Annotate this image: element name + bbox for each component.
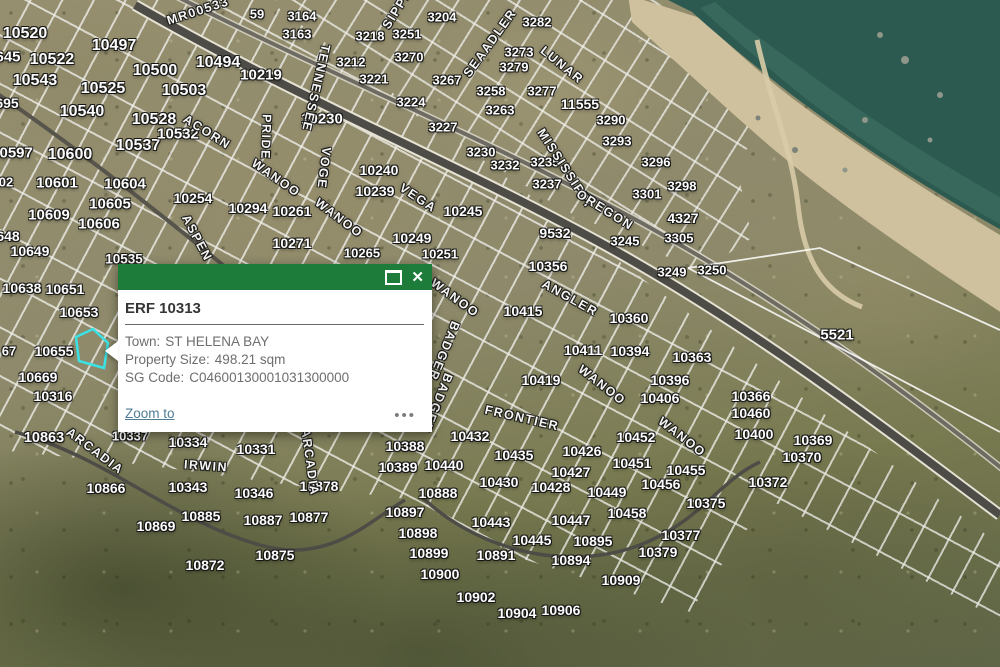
feature-popup: ✕ ERF 10313 Town:ST HELENA BAYProperty S… — [118, 264, 432, 432]
parcel-label: 10445 — [513, 532, 552, 548]
parcel-label: 10430 — [480, 474, 519, 490]
parcel-label: 10609 — [28, 207, 70, 224]
street-label: WANOO — [656, 414, 709, 460]
parcel-label: 10415 — [504, 303, 543, 319]
street-label: FRONTIER — [483, 403, 560, 434]
parcel-label: 10601 — [36, 175, 78, 192]
parcel-label: 3258 — [477, 84, 506, 99]
parcel-label: 10888 — [419, 485, 458, 501]
parcel-label: 10906 — [542, 602, 581, 618]
parcel-label: 10902 — [457, 589, 496, 605]
popup-divider — [125, 324, 424, 325]
parcel-label: 10885 — [182, 508, 221, 524]
parcel-label: 10440 — [425, 457, 464, 473]
parcel-label: 3296 — [642, 155, 671, 170]
parcel-label: 10600 — [48, 146, 93, 164]
parcel-label: 10428 — [532, 479, 571, 495]
parcel-label: 10669 — [19, 369, 58, 385]
parcel-label: 10406 — [641, 390, 680, 406]
parcel-label: 3293 — [603, 134, 632, 149]
parcel-label: 10372 — [749, 474, 788, 490]
parcel-label: 3279 — [500, 60, 529, 75]
parcel-label: 645 — [0, 49, 21, 66]
parcel-label: 4327 — [667, 210, 698, 226]
parcel-label: 10655 — [35, 343, 74, 359]
parcel-label: 10537 — [116, 137, 161, 155]
parcel-label: 9532 — [539, 225, 570, 241]
parcel-label: 10449 — [588, 484, 627, 500]
parcel-label: 10334 — [169, 434, 208, 450]
parcel-label: 10370 — [783, 449, 822, 465]
parcel-label: 3250 — [698, 263, 727, 278]
parcel-label: 3282 — [523, 15, 552, 30]
more-options-icon[interactable]: ••• — [394, 411, 416, 421]
parcel-label: 59 — [250, 7, 264, 22]
parcel-label: 10456 — [642, 476, 681, 492]
parcel-label: 3267 — [433, 73, 462, 88]
parcel-label: 10452 — [617, 429, 656, 445]
parcel-label: 10443 — [472, 514, 511, 530]
parcel-label: 695 — [0, 95, 19, 111]
street-label: VOGE — [314, 146, 333, 190]
popup-field-label: SG Code: — [125, 370, 184, 385]
street-label: LUNAR — [538, 43, 587, 86]
parcel-label: 67 — [2, 344, 16, 359]
parcel-label: 3277 — [528, 84, 557, 99]
parcel-label: 11555 — [561, 96, 599, 112]
parcel-label: 10245 — [444, 203, 483, 219]
parcel-label: 10265 — [344, 246, 380, 261]
parcel-label: 3245 — [611, 234, 640, 249]
street-label: PRIDE — [258, 114, 274, 160]
parcel-label: 10396 — [651, 372, 690, 388]
parcel-label: 10377 — [662, 527, 701, 543]
parcel-label: 10460 — [732, 405, 771, 421]
parcel-label: 10271 — [273, 235, 312, 251]
parcel-label: 10249 — [393, 230, 432, 246]
parcel-label: 10497 — [92, 37, 137, 55]
popup-field-value: 498.21 sqm — [215, 352, 286, 367]
parcel-label: 10346 — [235, 485, 274, 501]
zoom-to-link[interactable]: Zoom to — [125, 406, 175, 421]
parcel-label: 10520 — [3, 25, 48, 43]
popup-field: SG Code:C04600130001031300000 — [125, 369, 424, 387]
parcel-label: 10331 — [237, 441, 276, 457]
street-label: WANOO — [249, 156, 303, 200]
parcel-label: 10872 — [186, 557, 225, 573]
parcel-label: 10458 — [608, 505, 647, 521]
parcel-label: 10366 — [732, 388, 771, 404]
street-label: WANOO — [312, 196, 365, 241]
parcel-label: 10369 — [794, 432, 833, 448]
parcel-label: 3249 — [658, 265, 687, 280]
parcel-label: 10604 — [104, 176, 146, 193]
parcel-label: 10219 — [240, 67, 282, 84]
parcel-label: 3232 — [491, 158, 520, 173]
parcel-label: 10543 — [13, 72, 58, 90]
parcel-label: 10426 — [563, 443, 602, 459]
popup-pointer — [105, 341, 118, 361]
popup-field: Town:ST HELENA BAY — [125, 333, 424, 351]
parcel-label: 10400 — [735, 426, 774, 442]
parcel-label: 10432 — [451, 428, 490, 444]
parcel-label: 10451 — [613, 455, 652, 471]
parcel-label: 3263 — [486, 103, 515, 118]
popup-field-label: Property Size: — [125, 352, 210, 367]
parcel-label: 10411 — [564, 342, 602, 358]
street-label: WANOO — [428, 276, 482, 320]
parcel-label: 10891 — [477, 547, 516, 563]
popup-fields: Town:ST HELENA BAYProperty Size:498.21 s… — [125, 333, 424, 387]
parcel-label: 10394 — [611, 343, 650, 359]
parcel-label: 10500 — [133, 62, 178, 80]
parcel-label: 10904 — [498, 605, 537, 621]
parcel-label: 10597 — [0, 145, 33, 162]
parcel-label: 10447 — [552, 512, 591, 528]
parcel-label: 10651 — [46, 281, 85, 297]
popup-title: ERF 10313 — [125, 300, 424, 317]
popup-field: Property Size:498.21 sqm — [125, 351, 424, 369]
popup-field-value: ST HELENA BAY — [165, 334, 269, 349]
street-label: VEGA — [397, 181, 439, 216]
parcel-label: 10649 — [11, 243, 50, 259]
parcel-label: 3204 — [428, 10, 457, 25]
parcel-label: 10503 — [162, 82, 207, 100]
parcel-label: 3212 — [337, 55, 366, 70]
parcel-label: 10605 — [89, 196, 131, 213]
street-label: ANGLER — [540, 277, 601, 319]
parcel-label: 10875 — [256, 547, 295, 563]
parcel-label: 10388 — [386, 438, 425, 454]
parcel-label: 10898 — [399, 525, 438, 541]
parcel-label: 10343 — [169, 479, 208, 495]
parcel-label: 5521 — [820, 327, 853, 344]
parcel-label: 10863 — [24, 430, 64, 446]
parcel-label: 10877 — [290, 509, 329, 525]
parcel-label: 10895 — [574, 533, 613, 549]
parcel-label: 10427 — [552, 464, 591, 480]
parcel-label: 3251 — [393, 27, 422, 42]
parcel-label: 648 — [0, 228, 20, 244]
parcel-label: 10494 — [196, 54, 241, 72]
parcel-label: 10899 — [410, 545, 449, 561]
parcel-label: 10894 — [552, 552, 591, 568]
parcel-label: 3298 — [668, 179, 697, 194]
maximize-icon[interactable] — [385, 270, 402, 285]
parcel-label: 3237 — [533, 177, 562, 192]
parcel-label: 10869 — [137, 518, 176, 534]
popup-header: ✕ — [118, 264, 432, 290]
parcel-label: 10653 — [60, 304, 99, 320]
parcel-label: 3218 — [356, 29, 385, 44]
parcel-label: 02 — [0, 175, 13, 190]
parcel-label: 10356 — [529, 258, 568, 274]
parcel-label: 10540 — [60, 103, 105, 121]
parcel-label: 3301 — [633, 187, 662, 202]
parcel-label: 3227 — [429, 120, 458, 135]
parcel-label: 10239 — [356, 183, 395, 199]
street-label: WANOO — [576, 362, 629, 408]
map-application: 1049410520104976451052210543105001052510… — [0, 0, 1000, 667]
street-label: MR00533 — [165, 0, 231, 28]
parcel-label: 10606 — [78, 216, 120, 233]
parcel-label: 3164 — [288, 9, 317, 24]
parcel-label: 10379 — [639, 544, 678, 560]
parcel-label: 10638 — [3, 280, 42, 296]
parcel-label: 10897 — [386, 504, 425, 520]
parcel-label: 3305 — [665, 231, 694, 246]
parcel-label: 3270 — [395, 50, 424, 65]
parcel-label: 10316 — [34, 388, 73, 404]
close-icon[interactable]: ✕ — [411, 270, 424, 285]
parcel-label: 10900 — [421, 566, 460, 582]
popup-body: ERF 10313 Town:ST HELENA BAYProperty Siz… — [118, 290, 432, 427]
street-label: IRWIN — [184, 457, 229, 474]
parcel-label: 3290 — [597, 113, 626, 128]
popup-field-label: Town: — [125, 334, 160, 349]
parcel-label: 10294 — [229, 200, 268, 216]
parcel-label: 10887 — [244, 512, 283, 528]
street-label: ASPEN — [179, 212, 215, 263]
parcel-label: 10525 — [81, 80, 126, 98]
parcel-label: 10522 — [30, 51, 75, 69]
parcel-label: 10360 — [610, 310, 649, 326]
parcel-label: 10261 — [273, 203, 312, 219]
parcel-label: 10435 — [495, 447, 534, 463]
parcel-label: 10240 — [360, 162, 399, 178]
parcel-label: 10419 — [522, 372, 561, 388]
popup-field-value: C04600130001031300000 — [189, 370, 349, 385]
parcel-label: 10389 — [379, 459, 418, 475]
parcel-label: 3163 — [283, 27, 312, 42]
popup-footer: Zoom to ••• — [125, 406, 424, 421]
parcel-label: 10251 — [422, 247, 458, 262]
parcel-label: 3221 — [360, 72, 389, 87]
parcel-label: 10909 — [602, 572, 641, 588]
parcel-label: 10254 — [174, 190, 213, 206]
parcel-label: 10363 — [673, 349, 712, 365]
parcel-label: 3224 — [397, 95, 426, 110]
parcel-label: 10866 — [87, 480, 126, 496]
parcel-label: 10375 — [687, 495, 726, 511]
parcel-label: 3273 — [505, 45, 534, 60]
